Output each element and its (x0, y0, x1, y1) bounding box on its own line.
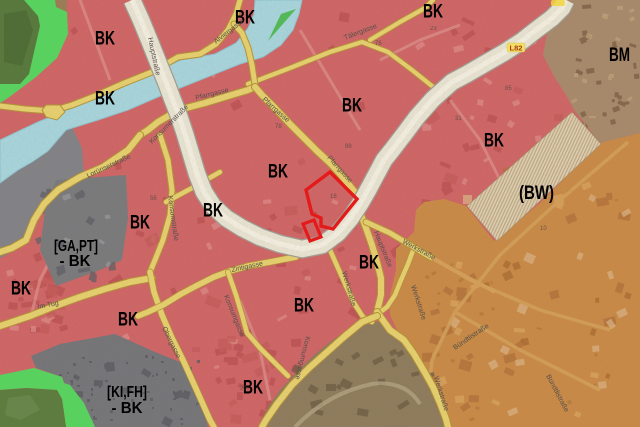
svg-text:16: 16 (330, 194, 337, 200)
svg-text:20: 20 (240, 386, 247, 392)
svg-text:(BW): (BW) (519, 183, 554, 204)
svg-text:BK: BK (342, 95, 362, 117)
svg-text:[KI,FH]: [KI,FH] (107, 384, 147, 401)
svg-text:BK: BK (203, 200, 223, 222)
svg-text:10: 10 (540, 226, 547, 232)
svg-text:BK: BK (294, 295, 314, 317)
svg-text:88: 88 (345, 144, 352, 150)
svg-text:BK: BK (118, 309, 138, 331)
svg-text:BK: BK (95, 88, 115, 110)
svg-text:BK: BK (268, 161, 288, 183)
svg-text:BK: BK (484, 130, 504, 152)
svg-text:23: 23 (430, 26, 437, 32)
svg-text:- BK: - BK (60, 253, 92, 270)
svg-text:BK: BK (95, 28, 115, 50)
svg-text:BK: BK (359, 252, 379, 274)
svg-text:56: 56 (150, 196, 157, 202)
svg-text:BK: BK (130, 212, 150, 234)
svg-text:31: 31 (455, 116, 462, 122)
svg-text:BM: BM (609, 45, 630, 66)
svg-text:BK: BK (423, 1, 443, 23)
svg-text:78: 78 (275, 124, 282, 130)
svg-text:L82: L82 (510, 44, 523, 53)
svg-text:BK: BK (11, 278, 31, 300)
svg-text:- BK: - BK (112, 400, 144, 417)
svg-text:85: 85 (505, 86, 512, 92)
svg-text:76: 76 (375, 41, 382, 47)
